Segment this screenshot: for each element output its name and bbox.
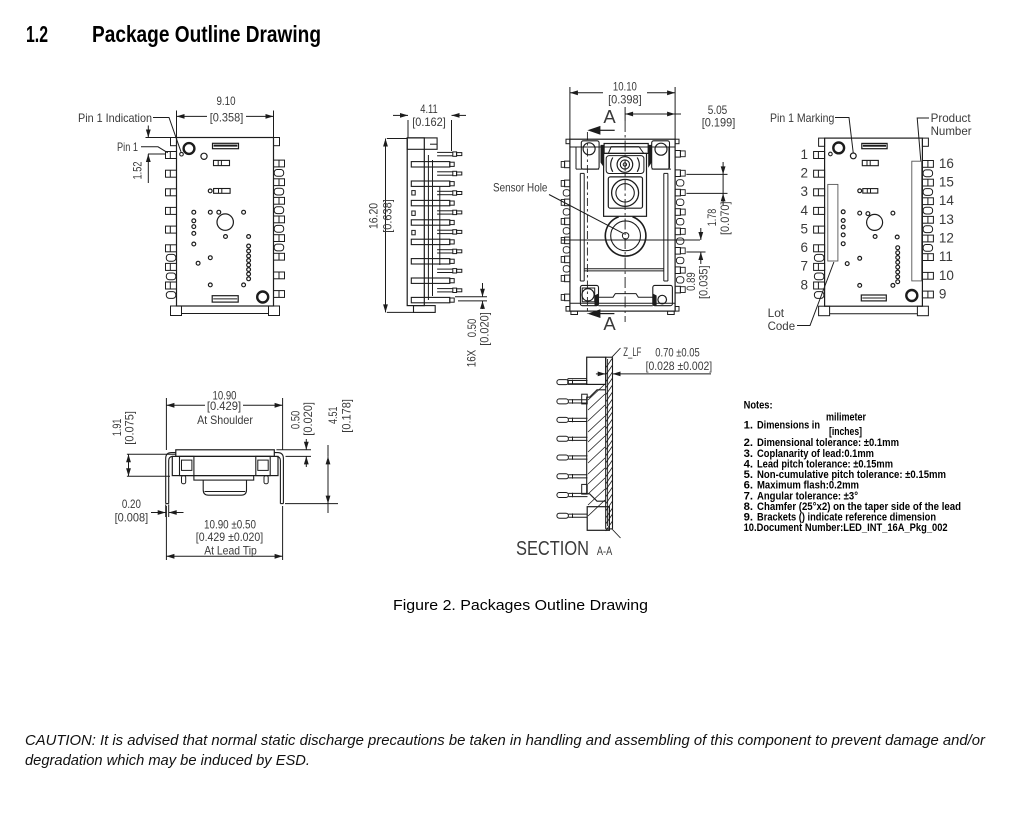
svg-text:7: 7: [800, 259, 808, 274]
svg-text:SECTION: SECTION: [516, 537, 589, 560]
svg-text:0.20: 0.20: [122, 498, 141, 511]
svg-text:Dimensions in: Dimensions in: [757, 419, 820, 431]
svg-text:13: 13: [939, 212, 954, 227]
svg-text:milimeter: milimeter: [826, 412, 866, 424]
svg-text:Notes:: Notes:: [744, 400, 773, 412]
svg-text:[0.162]: [0.162]: [412, 116, 446, 129]
svg-text:5: 5: [800, 221, 808, 236]
svg-text:Lot: Lot: [768, 307, 785, 320]
svg-text:4: 4: [800, 203, 808, 218]
svg-text:16.20: 16.20: [368, 203, 381, 229]
svg-text:[0.008]: [0.008]: [115, 512, 149, 525]
svg-text:0.50: 0.50: [466, 319, 479, 338]
svg-text:1.78: 1.78: [706, 209, 719, 227]
svg-text:[0.178]: [0.178]: [341, 399, 354, 433]
svg-text:[0.028 ±0.002]: [0.028 ±0.002]: [646, 360, 713, 373]
svg-text:6: 6: [800, 240, 808, 255]
svg-text:[0.020]: [0.020]: [302, 402, 315, 436]
svg-text:8: 8: [800, 277, 808, 292]
svg-text:Code: Code: [768, 320, 796, 333]
svg-text:0.50: 0.50: [290, 411, 303, 430]
svg-text:A: A: [603, 313, 616, 334]
svg-text:Product: Product: [931, 112, 972, 125]
svg-text:[0.070]: [0.070]: [719, 201, 732, 235]
svg-text:CAUTION: It is advised that no: CAUTION: It is advised that normal stati…: [25, 733, 986, 749]
svg-text:4.11: 4.11: [420, 103, 438, 116]
svg-text:4.51: 4.51: [327, 407, 340, 425]
svg-text:10.10: 10.10: [613, 81, 637, 94]
svg-text:[0.035]: [0.035]: [698, 265, 711, 299]
svg-text:1.52: 1.52: [132, 162, 145, 180]
svg-text:14: 14: [939, 193, 955, 208]
svg-text:[0.638]: [0.638]: [382, 199, 395, 233]
svg-text:Figure 2. Packages Outline Dra: Figure 2. Packages Outline Drawing: [393, 597, 648, 614]
svg-text:10.Document Number:LED_INT_16A: 10.Document Number:LED_INT_16A_Pkg_002: [744, 522, 948, 534]
svg-text:[0.075]: [0.075]: [123, 411, 136, 445]
svg-text:Pin 1: Pin 1: [117, 141, 138, 154]
svg-text:A: A: [603, 106, 616, 127]
svg-text:9.10: 9.10: [217, 95, 236, 108]
svg-text:1.2: 1.2: [26, 21, 48, 47]
svg-text:1.91: 1.91: [111, 419, 124, 437]
svg-text:0.89: 0.89: [685, 272, 698, 291]
svg-text:degradation which may be induc: degradation which may be induced by ESD.: [25, 753, 310, 769]
svg-text:12: 12: [939, 231, 954, 246]
svg-text:[0.398]: [0.398]: [608, 93, 642, 106]
svg-text:2: 2: [800, 166, 808, 181]
svg-text:0.70 ±0.05: 0.70 ±0.05: [655, 347, 699, 360]
svg-text:Pin 1 Indication: Pin 1 Indication: [78, 112, 152, 125]
svg-text:Package Outline Drawing: Package Outline Drawing: [92, 21, 321, 47]
svg-text:Number: Number: [931, 125, 972, 138]
svg-text:[0.429]: [0.429]: [207, 400, 241, 413]
svg-text:At Lead Tip: At Lead Tip: [204, 545, 257, 558]
svg-text:[0.020]: [0.020]: [479, 312, 492, 346]
svg-text:Z_LF: Z_LF: [623, 346, 641, 359]
svg-text:1.: 1.: [744, 419, 753, 431]
svg-text:[0.358]: [0.358]: [210, 112, 244, 125]
svg-text:1: 1: [800, 147, 808, 162]
svg-text:A-A: A-A: [597, 544, 613, 558]
svg-text:16X: 16X: [466, 350, 479, 368]
svg-text:At Shoulder: At Shoulder: [197, 414, 253, 427]
svg-text:10: 10: [939, 268, 954, 283]
svg-text:10.90 ±0.50: 10.90 ±0.50: [204, 519, 256, 532]
svg-text:11: 11: [939, 249, 953, 264]
svg-text:3: 3: [800, 184, 808, 199]
svg-text:16: 16: [939, 156, 954, 171]
svg-text:[0.199]: [0.199]: [702, 117, 736, 130]
svg-text:[0.429 ±0.020]: [0.429 ±0.020]: [196, 531, 263, 544]
svg-text:9: 9: [939, 286, 947, 301]
svg-text:5.05: 5.05: [708, 104, 728, 117]
svg-text:Sensor Hole: Sensor Hole: [493, 182, 547, 195]
svg-text:15: 15: [939, 175, 954, 190]
svg-text:Pin 1 Marking: Pin 1 Marking: [770, 112, 834, 125]
